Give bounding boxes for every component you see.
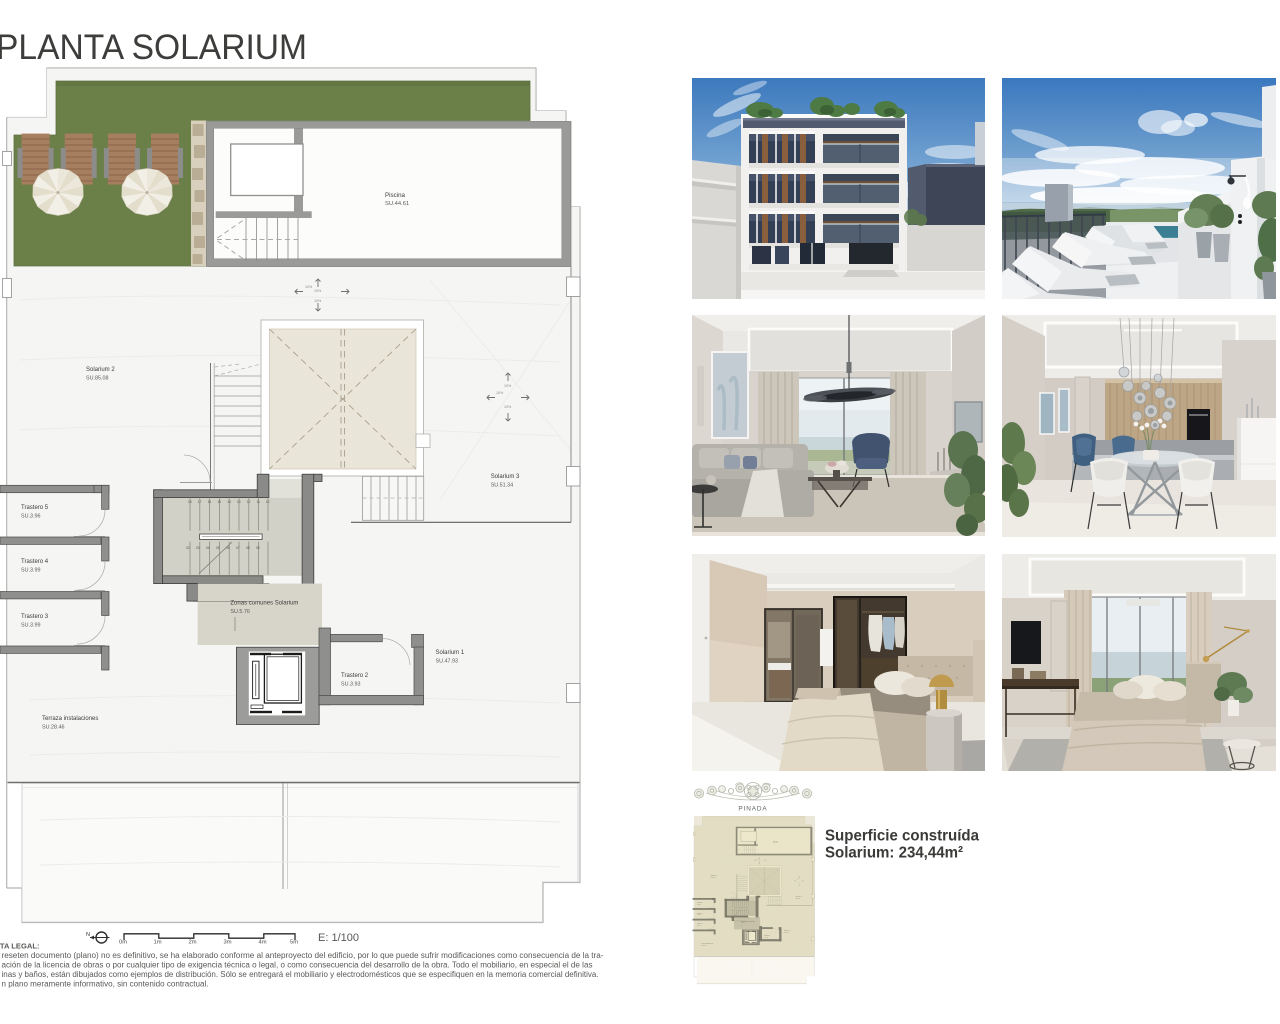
svg-text:E: 1/100: E: 1/100: [318, 932, 359, 944]
svg-text:08: 08: [246, 546, 250, 550]
svg-text:Solarium: 234,44m²: Solarium: 234,44m²: [825, 845, 963, 862]
svg-text:SU.28.46: SU.28.46: [42, 725, 64, 731]
svg-text:n plano meramente informativo,: n plano meramente informativo, sin conte…: [2, 980, 209, 989]
svg-text:Trastero 3: Trastero 3: [21, 614, 49, 620]
svg-text:Trastero 4: Trastero 4: [21, 559, 49, 565]
svg-text:Solarium 3: Solarium 3: [491, 474, 520, 480]
svg-text:SU.3.99: SU.3.99: [21, 623, 40, 629]
svg-text:2m: 2m: [189, 940, 197, 946]
svg-text:0m: 0m: [119, 940, 127, 946]
svg-text:Solarium 1: Solarium 1: [436, 650, 465, 656]
svg-text:02: 02: [186, 546, 190, 550]
svg-text:10%: 10%: [496, 391, 504, 395]
svg-text:4m: 4m: [259, 940, 267, 946]
svg-text:SU.47.93: SU.47.93: [436, 659, 458, 665]
svg-text:reseten documento (plano) no e: reseten documento (plano) no es definiti…: [2, 951, 604, 960]
svg-text:10%: 10%: [504, 384, 512, 388]
svg-text:09: 09: [256, 546, 260, 550]
svg-text:Superficie construída: Superficie construída: [825, 828, 979, 845]
svg-text:PLANTA SOLARIUM: PLANTA SOLARIUM: [0, 27, 307, 67]
svg-text:Piscina: Piscina: [385, 192, 406, 199]
svg-text:SU.3.93: SU.3.93: [341, 682, 360, 688]
svg-text:10%: 10%: [504, 405, 512, 409]
svg-text:5m: 5m: [290, 940, 298, 946]
svg-text:17: 17: [198, 500, 202, 504]
svg-text:18: 18: [188, 500, 192, 504]
svg-text:11: 11: [257, 500, 261, 504]
svg-text:3m: 3m: [224, 940, 232, 946]
svg-text:06: 06: [226, 546, 230, 550]
svg-text:SU.3.99: SU.3.99: [21, 568, 40, 574]
svg-text:04: 04: [206, 546, 210, 550]
svg-text:15: 15: [217, 500, 221, 504]
svg-text:07: 07: [236, 546, 240, 550]
svg-text:PINADA: PINADA: [738, 806, 767, 813]
svg-text:Trastero 2: Trastero 2: [341, 673, 369, 679]
svg-text:13: 13: [237, 500, 241, 504]
svg-text:SU.85.08: SU.85.08: [86, 376, 108, 382]
svg-text:Solarium 2: Solarium 2: [86, 367, 115, 373]
svg-text:10%: 10%: [314, 299, 322, 303]
svg-text:N: N: [86, 932, 90, 938]
svg-text:SU.5.76: SU.5.76: [230, 609, 249, 615]
svg-text:10%: 10%: [314, 289, 322, 293]
svg-text:SU.51.34: SU.51.34: [491, 483, 513, 489]
svg-text:Terraza instalaciones: Terraza instalaciones: [42, 716, 98, 722]
svg-text:05: 05: [216, 546, 220, 550]
svg-text:14: 14: [227, 500, 231, 504]
svg-text:10%: 10%: [305, 285, 313, 289]
svg-text:16: 16: [208, 500, 212, 504]
svg-text:SU.3.96: SU.3.96: [21, 514, 40, 520]
svg-text:Zonas comunes Solarium: Zonas comunes Solarium: [230, 601, 298, 607]
svg-text:10: 10: [266, 500, 270, 504]
svg-text:ación de la licencia de obras: ación de la licencia de obras o por cual…: [2, 961, 593, 970]
svg-text:SU.44.61: SU.44.61: [385, 201, 409, 207]
svg-text:Trastero 5: Trastero 5: [21, 505, 49, 511]
svg-text:1m: 1m: [154, 940, 162, 946]
svg-text:12: 12: [247, 500, 251, 504]
svg-text:NOTA LEGAL:: NOTA LEGAL:: [0, 942, 40, 951]
svg-text:03: 03: [196, 546, 200, 550]
svg-text:inas y baños, están dibujados: inas y baños, están dibujados como ejemp…: [2, 970, 599, 979]
